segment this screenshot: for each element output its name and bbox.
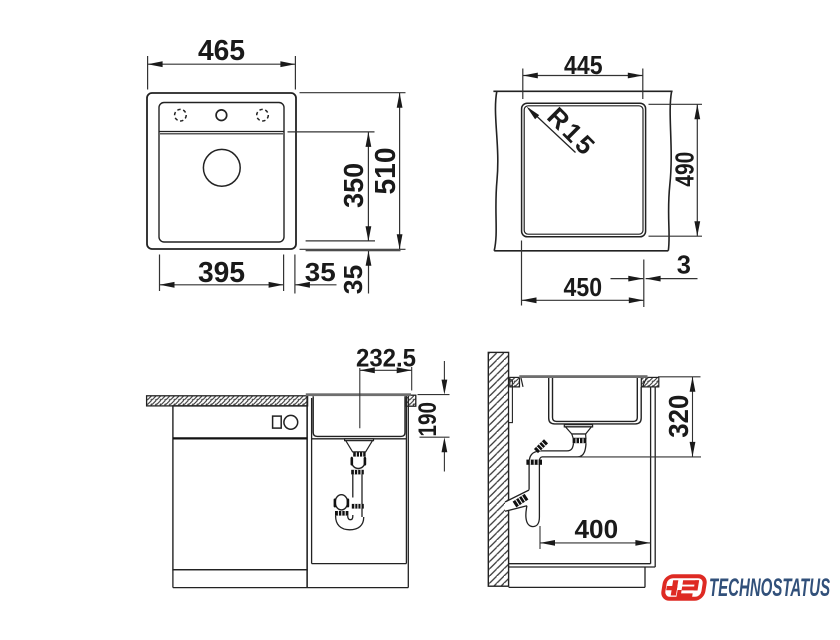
svg-text:35: 35 [338, 265, 368, 295]
svg-text:395: 395 [198, 257, 245, 289]
svg-text:490: 490 [672, 152, 700, 187]
svg-text:320: 320 [663, 395, 694, 438]
svg-text:232.5: 232.5 [356, 344, 416, 372]
svg-text:465: 465 [198, 35, 245, 67]
svg-text:TECHNOSTATUS: TECHNOSTATUS [709, 574, 830, 602]
svg-text:190: 190 [414, 402, 442, 437]
svg-text:3: 3 [677, 252, 691, 280]
svg-text:350: 350 [338, 163, 369, 208]
svg-text:400: 400 [575, 516, 619, 544]
svg-text:450: 450 [564, 274, 603, 302]
svg-text:510: 510 [370, 148, 402, 195]
svg-text:445: 445 [564, 52, 603, 80]
svg-text:35: 35 [305, 257, 336, 287]
